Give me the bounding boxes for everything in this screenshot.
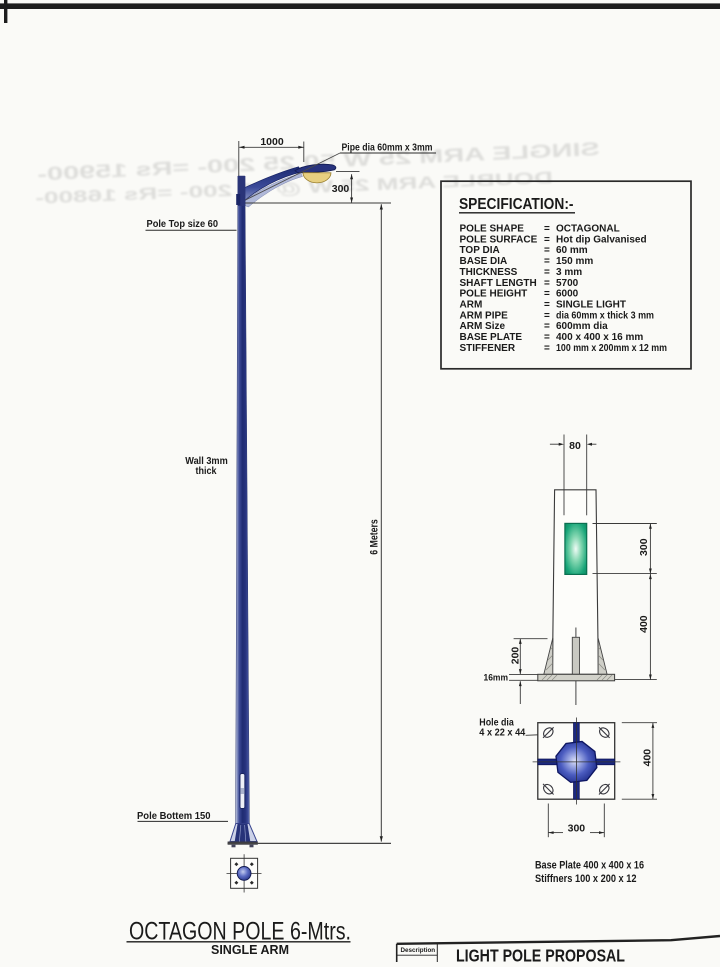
svg-text:Stiffners 100 x 200 x 12: Stiffners 100 x 200 x 12	[535, 873, 637, 885]
svg-text:SINGLE ARM: SINGLE ARM	[211, 943, 289, 957]
svg-text:4 x 22 x 44: 4 x 22 x 44	[479, 728, 525, 739]
svg-text:SPECIFICATION:-: SPECIFICATION:-	[459, 196, 574, 213]
svg-text:5700: 5700	[556, 278, 579, 289]
svg-text:Pole Bottem 150: Pole Bottem 150	[137, 810, 211, 822]
svg-text:300: 300	[568, 823, 586, 835]
svg-text:400: 400	[638, 615, 650, 633]
svg-text:Base Plate 400 x 400 x 16: Base Plate 400 x 400 x 16	[535, 860, 644, 872]
svg-text:400: 400	[642, 749, 654, 767]
svg-text:=: =	[544, 245, 550, 256]
svg-text:6000: 6000	[556, 289, 579, 300]
svg-text:POLE SHAPE: POLE SHAPE	[460, 224, 525, 235]
svg-text:LIGHT POLE PROPOSAL: LIGHT POLE PROPOSAL	[456, 946, 625, 963]
svg-text:STIFFENER: STIFFENER	[460, 343, 516, 354]
svg-text:80: 80	[569, 440, 581, 452]
svg-text:16mm: 16mm	[484, 673, 509, 684]
svg-text:Hot dip Galvanised: Hot dip Galvanised	[556, 234, 647, 245]
svg-text:Description: Description	[401, 947, 436, 954]
svg-text:=: =	[544, 256, 550, 267]
svg-text:=: =	[544, 321, 550, 332]
svg-text:POLE SURFACE: POLE SURFACE	[460, 234, 538, 245]
svg-text:POLE HEIGHT: POLE HEIGHT	[460, 289, 528, 300]
svg-text:OCTAGONAL: OCTAGONAL	[556, 224, 620, 235]
svg-text:=: =	[544, 289, 550, 300]
svg-text:ARM PIPE: ARM PIPE	[460, 310, 509, 321]
svg-text:TOP DIA: TOP DIA	[460, 245, 500, 256]
svg-text:BASE PLATE: BASE PLATE	[460, 332, 523, 343]
svg-text:Pipe dia 60mm x 3mm: Pipe dia 60mm x 3mm	[342, 143, 433, 154]
svg-text:dia 60mm x thick 3 mm: dia 60mm x thick 3 mm	[556, 310, 654, 321]
svg-text:thick: thick	[196, 466, 217, 477]
svg-text:=: =	[544, 343, 550, 354]
svg-text:SHAFT LENGTH: SHAFT LENGTH	[460, 278, 537, 289]
svg-text:BASE DIA: BASE DIA	[460, 256, 508, 267]
svg-text:=: =	[544, 267, 550, 278]
svg-text:=: =	[544, 310, 550, 321]
svg-text:300: 300	[638, 538, 650, 556]
svg-text:=: =	[544, 332, 550, 343]
svg-text:6 Meters: 6 Meters	[368, 519, 380, 555]
svg-text:ARM: ARM	[460, 300, 483, 311]
svg-text:=: =	[544, 300, 550, 311]
svg-text:1000: 1000	[260, 136, 284, 148]
svg-text:ARM Size: ARM Size	[460, 321, 506, 332]
svg-text:600mm dia: 600mm dia	[556, 321, 608, 332]
svg-text:SINGLE LIGHT: SINGLE LIGHT	[556, 300, 626, 311]
svg-text:60 mm: 60 mm	[556, 245, 588, 256]
svg-text:300: 300	[332, 183, 350, 195]
svg-text:100 mm x 200mm x 12 mm: 100 mm x 200mm x 12 mm	[556, 343, 667, 354]
svg-text:200: 200	[510, 647, 522, 665]
svg-text:3 mm: 3 mm	[556, 267, 582, 278]
svg-text:=: =	[544, 234, 550, 245]
svg-text:400 x 400 x 16 mm: 400 x 400 x 16 mm	[556, 332, 643, 343]
svg-text:OCTAGON POLE 6-Mtrs.: OCTAGON POLE 6-Mtrs.	[129, 917, 351, 945]
svg-text:Pole Top size 60: Pole Top size 60	[147, 219, 219, 230]
svg-text:THICKNESS: THICKNESS	[460, 267, 518, 278]
svg-text:150 mm: 150 mm	[556, 256, 593, 267]
svg-text:=: =	[544, 224, 550, 235]
svg-text:=: =	[544, 278, 550, 289]
